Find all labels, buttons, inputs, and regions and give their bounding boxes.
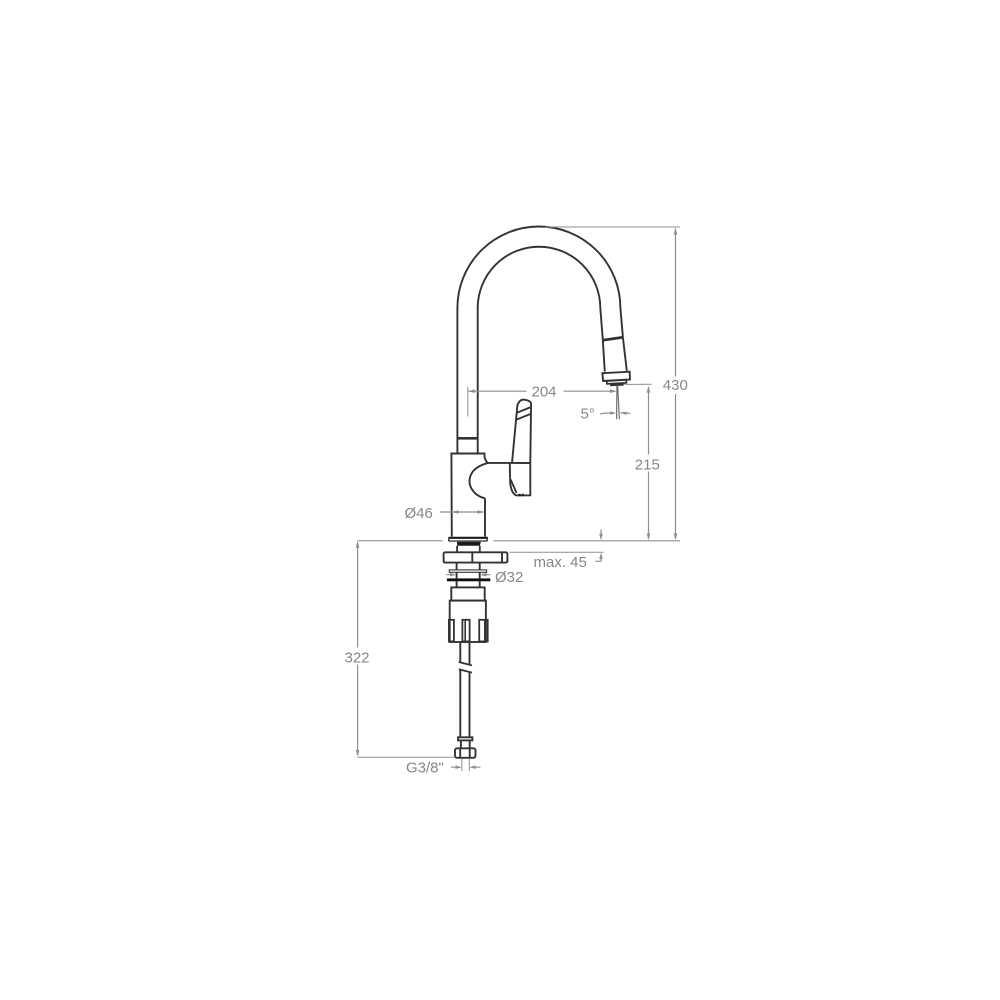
svg-text:max. 45: max. 45 [534, 554, 587, 571]
svg-text:322: 322 [345, 649, 370, 666]
svg-text:5°: 5° [581, 405, 595, 422]
svg-text:215: 215 [635, 456, 660, 473]
svg-text:204: 204 [532, 383, 557, 400]
svg-text:Ø32: Ø32 [495, 569, 523, 586]
svg-text:430: 430 [663, 377, 688, 394]
svg-text:G3/8": G3/8" [406, 759, 444, 776]
svg-text:Ø46: Ø46 [405, 505, 433, 522]
